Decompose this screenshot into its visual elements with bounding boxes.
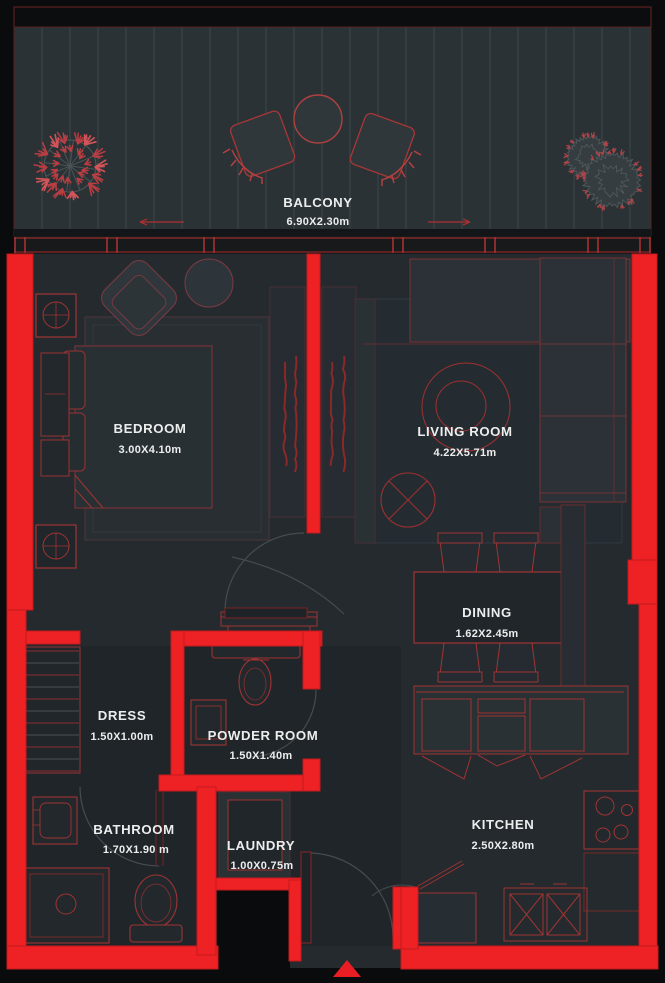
svg-text:2.50X2.80m: 2.50X2.80m bbox=[472, 840, 535, 852]
svg-text:BEDROOM: BEDROOM bbox=[113, 421, 186, 436]
svg-text:1.50X1.00m: 1.50X1.00m bbox=[91, 731, 154, 743]
svg-text:1.70X1.90 m: 1.70X1.90 m bbox=[103, 844, 169, 856]
svg-text:LAUNDRY: LAUNDRY bbox=[227, 838, 295, 853]
svg-text:1.62X2.45m: 1.62X2.45m bbox=[456, 628, 519, 640]
svg-text:DRESS: DRESS bbox=[98, 708, 146, 723]
svg-text:6.90X2.30m: 6.90X2.30m bbox=[287, 216, 350, 228]
svg-text:4.22X5.71m: 4.22X5.71m bbox=[434, 447, 497, 459]
svg-text:KITCHEN: KITCHEN bbox=[472, 817, 535, 832]
svg-text:BALCONY: BALCONY bbox=[283, 195, 352, 210]
svg-text:POWDER ROOM: POWDER ROOM bbox=[208, 728, 319, 743]
svg-text:1.50X1.40m: 1.50X1.40m bbox=[230, 750, 293, 762]
svg-text:3.00X4.10m: 3.00X4.10m bbox=[119, 444, 182, 456]
svg-text:BATHROOM: BATHROOM bbox=[93, 822, 174, 837]
svg-text:DINING: DINING bbox=[462, 605, 512, 620]
svg-text:LIVING ROOM: LIVING ROOM bbox=[417, 424, 512, 439]
svg-text:1.00X0.75m: 1.00X0.75m bbox=[231, 860, 294, 872]
